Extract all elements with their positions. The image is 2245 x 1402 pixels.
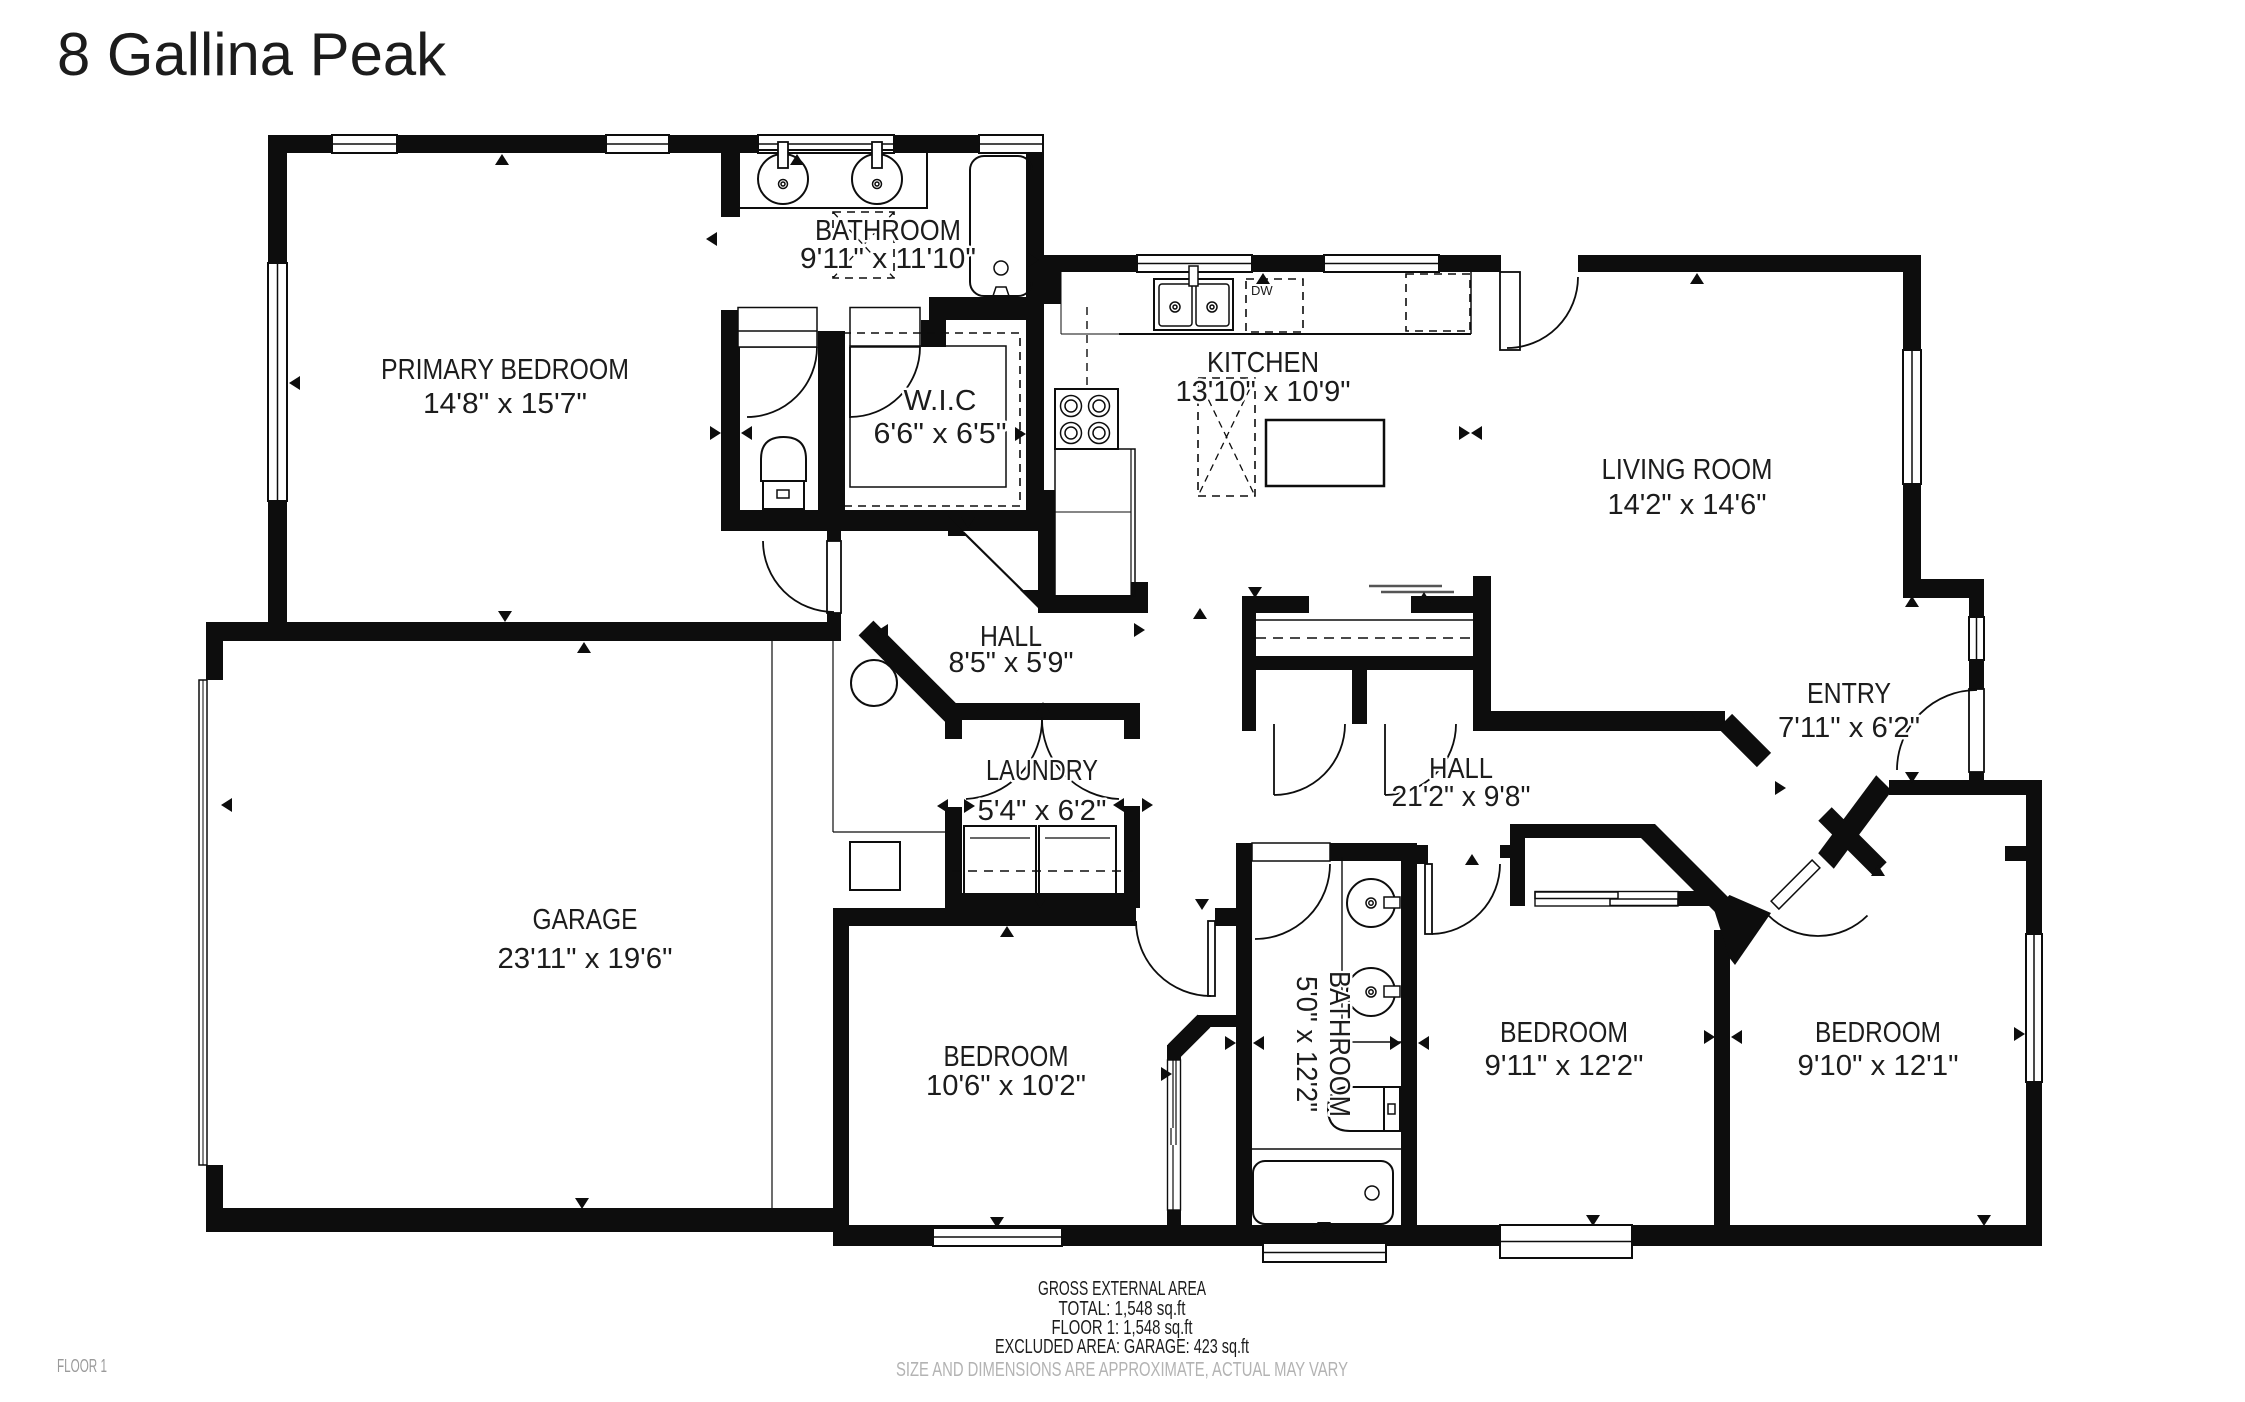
svg-text:ENTRY: ENTRY: [1807, 678, 1891, 710]
svg-text:KITCHEN: KITCHEN: [1207, 347, 1319, 379]
svg-text:9'10" x 12'1": 9'10" x 12'1": [1798, 1050, 1959, 1082]
svg-text:PRIMARY BEDROOM: PRIMARY BEDROOM: [381, 354, 629, 386]
svg-text:BATHROOM: BATHROOM: [1323, 971, 1355, 1117]
svg-text:21'2" x 9'8": 21'2" x 9'8": [1392, 781, 1531, 813]
svg-text:BEDROOM: BEDROOM: [944, 1041, 1069, 1073]
svg-text:EXCLUDED AREA: GARAGE: 423 sq.: EXCLUDED AREA: GARAGE: 423 sq.ft: [995, 1336, 1249, 1358]
svg-text:14'2" x 14'6": 14'2" x 14'6": [1608, 489, 1767, 521]
svg-text:FLOOR 1: FLOOR 1: [57, 1356, 107, 1376]
svg-text:8 Gallina Peak: 8 Gallina Peak: [57, 21, 447, 88]
svg-text:10'6" x 10'2": 10'6" x 10'2": [926, 1070, 1086, 1102]
svg-text:8'5" x 5'9": 8'5" x 5'9": [949, 647, 1074, 679]
svg-text:BEDROOM: BEDROOM: [1815, 1017, 1941, 1049]
svg-text:GARAGE: GARAGE: [533, 904, 638, 936]
svg-text:LIVING ROOM: LIVING ROOM: [1602, 454, 1773, 486]
svg-text:BEDROOM: BEDROOM: [1500, 1017, 1628, 1049]
svg-text:LAUNDRY: LAUNDRY: [986, 755, 1098, 787]
svg-text:7'11" x 6'2": 7'11" x 6'2": [1778, 712, 1920, 744]
svg-text:9'11" x 12'2": 9'11" x 12'2": [1485, 1050, 1644, 1082]
svg-text:SIZE AND DIMENSIONS ARE APPROX: SIZE AND DIMENSIONS ARE APPROXIMATE, ACT…: [896, 1359, 1348, 1381]
svg-text:5'4" x 6'2": 5'4" x 6'2": [978, 795, 1107, 827]
svg-text:5'0" x 12'2": 5'0" x 12'2": [1290, 976, 1322, 1112]
svg-text:6'6" x 6'5": 6'6" x 6'5": [874, 418, 1007, 450]
svg-text:14'8" x 15'7": 14'8" x 15'7": [423, 388, 587, 420]
svg-text:23'11" x 19'6": 23'11" x 19'6": [498, 943, 673, 975]
svg-text:W.I.C: W.I.C: [904, 385, 977, 417]
svg-text:GROSS EXTERNAL AREA: GROSS EXTERNAL AREA: [1038, 1278, 1206, 1300]
svg-text:9'11" x 11'10": 9'11" x 11'10": [800, 243, 976, 275]
svg-text:DW: DW: [1251, 283, 1273, 298]
svg-text:13'10" x 10'9": 13'10" x 10'9": [1176, 376, 1351, 408]
